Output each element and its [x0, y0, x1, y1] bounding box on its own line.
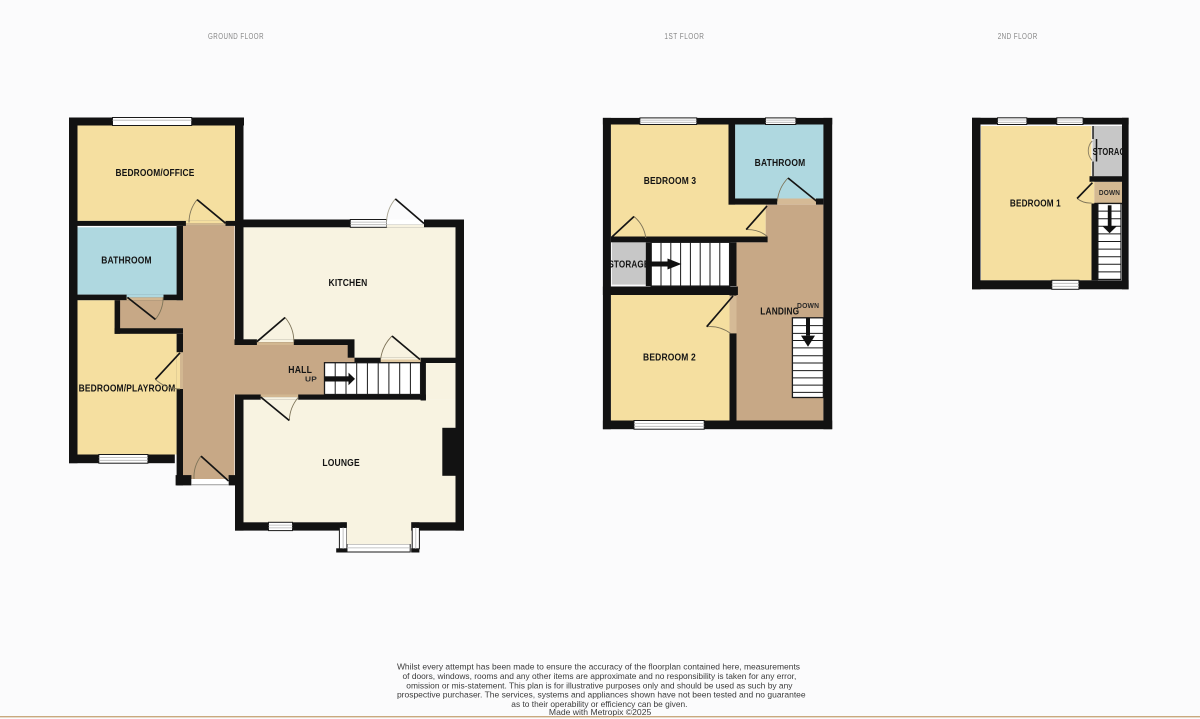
- svg-text:Made with Metropix ©2025: Made with Metropix ©2025: [549, 707, 652, 717]
- svg-text:BATHROOM: BATHROOM: [755, 158, 806, 169]
- svg-text:DOWN: DOWN: [797, 301, 819, 310]
- svg-text:BEDROOM 2: BEDROOM 2: [643, 353, 696, 364]
- svg-text:BATHROOM: BATHROOM: [101, 256, 152, 267]
- svg-text:KITCHEN: KITCHEN: [329, 278, 368, 289]
- svg-text:DOWN: DOWN: [1099, 188, 1120, 197]
- svg-text:UP: UP: [305, 375, 317, 384]
- svg-text:BEDROOM 1: BEDROOM 1: [1010, 199, 1061, 210]
- svg-text:BEDROOM/PLAYROOM: BEDROOM/PLAYROOM: [79, 384, 176, 395]
- svg-text:BEDROOM 3: BEDROOM 3: [644, 176, 697, 187]
- svg-text:GROUND FLOOR: GROUND FLOOR: [208, 32, 264, 41]
- svg-text:BEDROOM/OFFICE: BEDROOM/OFFICE: [116, 168, 195, 179]
- svg-text:LANDING: LANDING: [760, 307, 799, 318]
- svg-text:LOUNGE: LOUNGE: [322, 458, 360, 469]
- svg-text:1ST FLOOR: 1ST FLOOR: [664, 32, 704, 41]
- svg-text:2ND FLOOR: 2ND FLOOR: [998, 32, 1038, 41]
- svg-text:STORAGE: STORAGE: [608, 260, 649, 271]
